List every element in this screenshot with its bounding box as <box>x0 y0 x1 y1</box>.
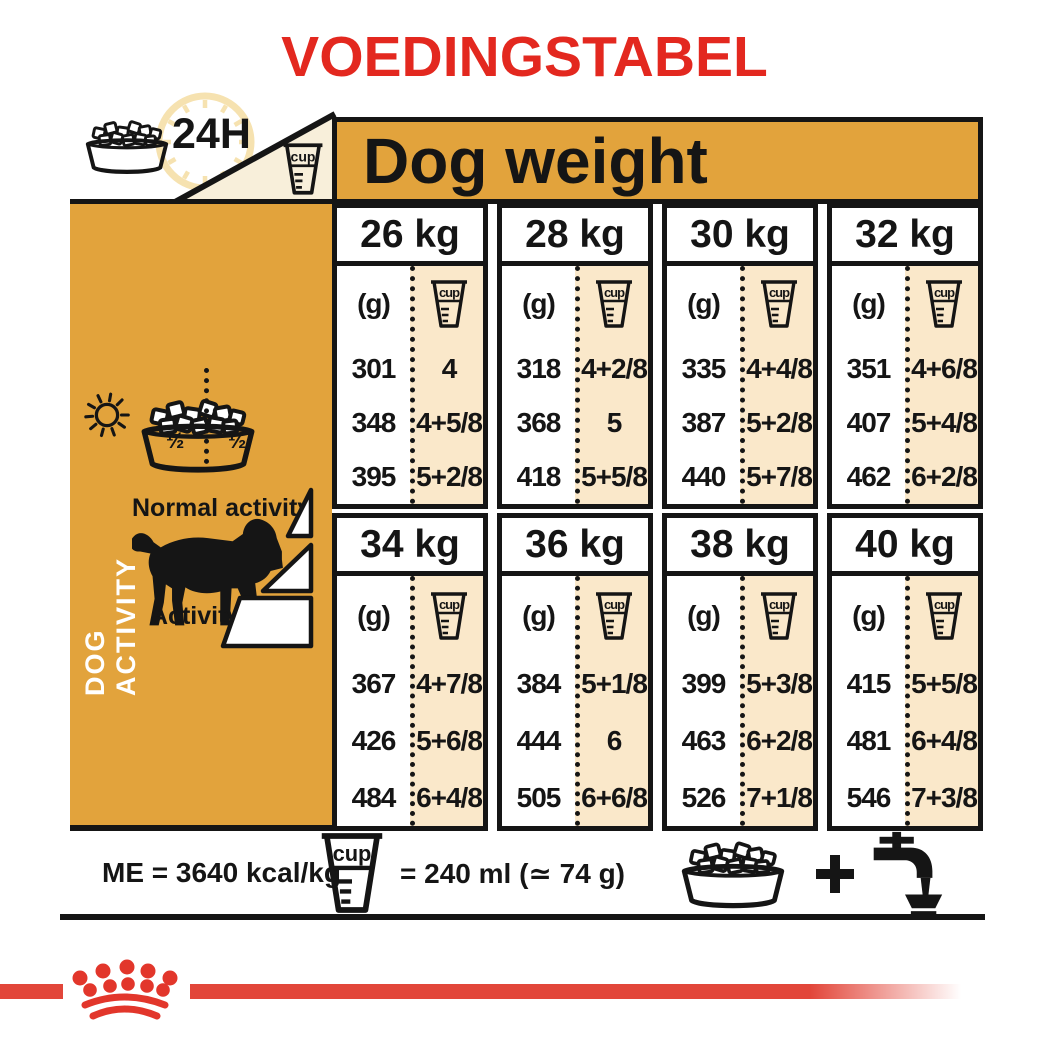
24h-label: 24H <box>172 110 251 159</box>
cups-value: 5+5/8 <box>910 656 978 713</box>
cups-value: 5+2/8 <box>415 450 483 504</box>
grams-value: 546 <box>832 769 905 826</box>
cup-word: cup <box>439 597 460 612</box>
grams-value: 335 <box>667 342 740 396</box>
half-divider-dotted-line <box>204 368 209 464</box>
grams-value: 505 <box>502 769 575 826</box>
weight-label: 32 kg <box>855 213 955 257</box>
weight-column-body: (g) 335 387 440 cup 4+4/8 5+2/8 5+7/8 <box>667 266 813 504</box>
cups-value: 5 <box>580 396 648 450</box>
sidebar: ½ ½ DOG ACTIVITY Normal activity Activit… <box>70 199 332 831</box>
cups-value: 5+4/8 <box>910 396 978 450</box>
weight-header: 30 kg <box>667 208 813 266</box>
plus-icon <box>814 853 856 895</box>
cups-value: 6+4/8 <box>415 769 483 826</box>
divider-rule <box>60 914 985 920</box>
cup-icon: cup <box>415 266 483 342</box>
cup-icon: cup <box>580 266 648 342</box>
weight-label: 34 kg <box>360 523 460 567</box>
cup-word: cup <box>604 285 625 300</box>
cup-word: cup <box>291 148 316 164</box>
cups-subcolumn: cup 4 4+5/8 5+2/8 <box>410 266 483 504</box>
grams-value: 484 <box>337 769 410 826</box>
grams-subcolumn: (g) 318 368 418 <box>502 266 575 504</box>
weight-column: 28 kg (g) 318 368 418 cup 4+2/8 5 5+5/8 <box>497 203 653 509</box>
weight-column-body: (g) 384 444 505 cup 5+1/8 6 6+6/8 <box>502 576 648 826</box>
grams-value: 415 <box>832 656 905 713</box>
footer-note: ME = 3640 kcal/kg cup = 240 ml (≃ 74 g) <box>60 831 985 915</box>
half-portion-left: ½ <box>166 428 184 454</box>
grams-value: 395 <box>337 450 410 504</box>
cup-word: cup <box>439 285 460 300</box>
cup-word: cup <box>934 597 955 612</box>
weight-column: 40 kg (g) 415 481 546 cup 5+5/8 6+4/8 7+… <box>827 513 983 831</box>
cups-subcolumn: cup 4+4/8 5+2/8 5+7/8 <box>740 266 813 504</box>
weight-header: 26 kg <box>337 208 483 266</box>
cups-value: 6+6/8 <box>580 769 648 826</box>
activity-level-triangles <box>218 484 316 654</box>
grams-subcolumn: (g) 415 481 546 <box>832 576 905 826</box>
page-title: VOEDINGSTABEL <box>0 24 1049 90</box>
grams-value: 462 <box>832 450 905 504</box>
weight-row-group-1: 26 kg (g) 301 348 395 cup 4 4+5/8 5+2/8 <box>332 203 983 509</box>
grams-unit-label: (g) <box>832 576 905 656</box>
grams-unit-label: (g) <box>337 576 410 656</box>
grams-value: 444 <box>502 712 575 769</box>
weight-header: 38 kg <box>667 518 813 576</box>
grams-value: 367 <box>337 656 410 713</box>
cups-value: 4+6/8 <box>910 342 978 396</box>
weight-label: 38 kg <box>690 523 790 567</box>
grams-subcolumn: (g) 335 387 440 <box>667 266 740 504</box>
cup-equivalence-label: = 240 ml (≃ 74 g) <box>400 857 625 890</box>
weight-column-body: (g) 367 426 484 cup 4+7/8 5+6/8 6+4/8 <box>337 576 483 826</box>
sun-icon <box>78 386 136 444</box>
cups-value: 6+2/8 <box>910 450 978 504</box>
weight-column: 26 kg (g) 301 348 395 cup 4 4+5/8 5+2/8 <box>332 203 488 509</box>
grams-subcolumn: (g) 367 426 484 <box>337 576 410 826</box>
grams-unit-label: (g) <box>502 576 575 656</box>
grams-subcolumn: (g) 301 348 395 <box>337 266 410 504</box>
grams-unit-label: (g) <box>502 266 575 342</box>
cups-value: 5+5/8 <box>580 450 648 504</box>
cups-value: 7+1/8 <box>745 769 813 826</box>
weight-header: 34 kg <box>337 518 483 576</box>
cups-value: 6 <box>580 712 648 769</box>
weight-label: 40 kg <box>855 523 955 567</box>
cups-value: 7+3/8 <box>910 769 978 826</box>
cups-subcolumn: cup 5+5/8 6+4/8 7+3/8 <box>905 576 978 826</box>
cups-value: 6+4/8 <box>910 712 978 769</box>
red-band-right <box>190 984 985 999</box>
water-tap-icon <box>860 831 950 915</box>
weight-label: 26 kg <box>360 213 460 257</box>
cups-value: 4+7/8 <box>415 656 483 713</box>
cup-icon: cup <box>910 266 978 342</box>
weight-column-body: (g) 415 481 546 cup 5+5/8 6+4/8 7+3/8 <box>832 576 978 826</box>
grams-value: 407 <box>832 396 905 450</box>
cup-icon: cup <box>745 576 813 656</box>
grams-unit-label: (g) <box>832 266 905 342</box>
weight-header: 32 kg <box>832 208 978 266</box>
weight-column: 38 kg (g) 399 463 526 cup 5+3/8 6+2/8 7+… <box>662 513 818 831</box>
weight-column: 36 kg (g) 384 444 505 cup 5+1/8 6 6+6/8 <box>497 513 653 831</box>
cups-subcolumn: cup 4+2/8 5 5+5/8 <box>575 266 648 504</box>
kibble-bowl-icon <box>78 116 176 180</box>
cup-icon: cup <box>580 576 648 656</box>
weight-column-body: (g) 351 407 462 cup 4+6/8 5+4/8 6+2/8 <box>832 266 978 504</box>
grams-value: 384 <box>502 656 575 713</box>
moon-icon <box>282 390 318 440</box>
weight-column: 34 kg (g) 367 426 484 cup 4+7/8 5+6/8 6+… <box>332 513 488 831</box>
weight-column: 30 kg (g) 335 387 440 cup 4+4/8 5+2/8 5+… <box>662 203 818 509</box>
cup-word: cup <box>769 285 790 300</box>
grams-value: 463 <box>667 712 740 769</box>
cup-word: cup <box>769 597 790 612</box>
grams-value: 399 <box>667 656 740 713</box>
cups-value: 5+3/8 <box>745 656 813 713</box>
grams-value: 318 <box>502 342 575 396</box>
cups-value: 5+2/8 <box>745 396 813 450</box>
cups-value: 4 <box>415 342 483 396</box>
red-band-left <box>0 984 63 999</box>
weight-label: 36 kg <box>525 523 625 567</box>
half-portion-right: ½ <box>228 428 246 454</box>
weight-column-body: (g) 399 463 526 cup 5+3/8 6+2/8 7+1/8 <box>667 576 813 826</box>
grams-value: 481 <box>832 712 905 769</box>
cups-subcolumn: cup 5+1/8 6 6+6/8 <box>575 576 648 826</box>
grams-value: 526 <box>667 769 740 826</box>
grams-unit-label: (g) <box>667 576 740 656</box>
weight-column: 32 kg (g) 351 407 462 cup 4+6/8 5+4/8 6+… <box>827 203 983 509</box>
grams-value: 418 <box>502 450 575 504</box>
grams-unit-label: (g) <box>337 266 410 342</box>
cups-value: 4+5/8 <box>415 396 483 450</box>
cups-value: 4+2/8 <box>580 342 648 396</box>
grams-value: 387 <box>667 396 740 450</box>
feeding-table-panel: VOEDINGSTABEL 24H cup Dog weight <box>0 0 1049 1049</box>
cups-subcolumn: cup 4+7/8 5+6/8 6+4/8 <box>410 576 483 826</box>
cup-icon: cup <box>910 576 978 656</box>
grams-subcolumn: (g) 399 463 526 <box>667 576 740 826</box>
weight-column-body: (g) 318 368 418 cup 4+2/8 5 5+5/8 <box>502 266 648 504</box>
cup-icon: cup <box>745 266 813 342</box>
grams-value: 440 <box>667 450 740 504</box>
cup-word: cup <box>333 841 372 866</box>
cup-icon: cup <box>281 142 325 196</box>
weight-table: 26 kg (g) 301 348 395 cup 4 4+5/8 5+2/8 <box>332 203 983 831</box>
weight-header: 36 kg <box>502 518 648 576</box>
weight-header: 28 kg <box>502 208 648 266</box>
cups-value: 5+7/8 <box>745 450 813 504</box>
grams-subcolumn: (g) 384 444 505 <box>502 576 575 826</box>
cup-word: cup <box>604 597 625 612</box>
cups-value: 5+1/8 <box>580 656 648 713</box>
grams-value: 348 <box>337 396 410 450</box>
cups-value: 6+2/8 <box>745 712 813 769</box>
weight-label: 28 kg <box>525 213 625 257</box>
kibble-bowl-icon <box>656 837 810 915</box>
cups-value: 5+6/8 <box>415 712 483 769</box>
cup-icon-large: cup <box>316 831 388 915</box>
cup-word: cup <box>934 285 955 300</box>
cup-icon: cup <box>415 576 483 656</box>
weight-header: 40 kg <box>832 518 978 576</box>
grams-unit-label: (g) <box>667 266 740 342</box>
weight-row-group-2: 34 kg (g) 367 426 484 cup 4+7/8 5+6/8 6+… <box>332 513 983 831</box>
royal-canin-crown-logo <box>58 950 188 1030</box>
cups-subcolumn: cup 5+3/8 6+2/8 7+1/8 <box>740 576 813 826</box>
cups-value: 4+4/8 <box>745 342 813 396</box>
grams-subcolumn: (g) 351 407 462 <box>832 266 905 504</box>
grams-value: 301 <box>337 342 410 396</box>
grams-value: 368 <box>502 396 575 450</box>
weight-label: 30 kg <box>690 213 790 257</box>
grams-value: 426 <box>337 712 410 769</box>
dog-weight-header: Dog weight <box>332 117 983 204</box>
grams-value: 351 <box>832 342 905 396</box>
dog-weight-label: Dog weight <box>363 124 708 198</box>
weight-column-body: (g) 301 348 395 cup 4 4+5/8 5+2/8 <box>337 266 483 504</box>
metabolizable-energy-label: ME = 3640 kcal/kg <box>102 857 341 889</box>
cups-subcolumn: cup 4+6/8 5+4/8 6+2/8 <box>905 266 978 504</box>
